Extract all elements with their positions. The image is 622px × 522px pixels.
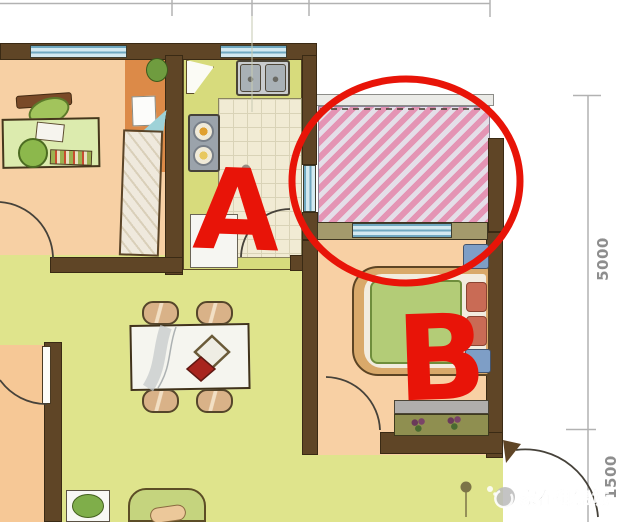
dresser-front [394,414,489,436]
entry-door-arc [516,449,598,517]
desk-chair [18,138,48,168]
floor-plan: A B 5000 1500 家在御锦城 [0,0,622,522]
entry-hall-floor [300,450,503,522]
balcony-hatched-area [318,106,490,224]
bedroom-left-wall [302,240,318,455]
dimension-label-1500: 1500 [602,455,620,499]
sink-basin-right [265,64,286,92]
study-window [30,45,127,58]
pillow-bottom [466,316,487,346]
washing-machine [190,214,238,268]
potted-plant [72,494,104,518]
pillow-top [466,282,487,312]
entry-door-leaf [503,440,521,463]
dimension-label-5000: 5000 [594,237,612,281]
second-bedroom-floor [0,345,48,522]
dresser-top [394,400,489,414]
kitchen-side-window [303,165,316,212]
study-kitchen-partition-wall [165,55,183,275]
dining-table [129,323,250,391]
dining-chair-bottom-left [142,389,179,413]
sink-basin-left [240,64,261,92]
balcony-glazing-band [315,94,494,106]
nightstand-bottom [465,349,491,373]
pen-tray [50,149,92,165]
nightstand-top [463,244,489,269]
corner-plant [146,58,168,82]
kitchen-window [220,45,287,58]
watermark-text: 家在御锦城 [520,488,610,509]
kitchen-right-wall [302,55,317,165]
burner-bottom [193,145,214,166]
side-cabinet [119,129,163,256]
kitchen-right-wall-lower [302,212,318,240]
second-bedroom-door-leaf [42,346,51,404]
dining-chair-bottom-right [196,389,233,413]
balcony-right-wall [488,138,504,232]
bedroom-window [352,223,452,238]
flower-decor-left [410,417,426,433]
study-bottom-wall [50,257,183,273]
dining-chair-top-right [196,301,233,325]
burner-top [193,121,214,142]
paper-sheet [131,96,156,127]
bed-blanket [370,280,462,364]
dining-chair-top-left [142,301,179,325]
flower-decor-right [446,415,462,431]
watermark: 家在御锦城 [487,486,610,509]
